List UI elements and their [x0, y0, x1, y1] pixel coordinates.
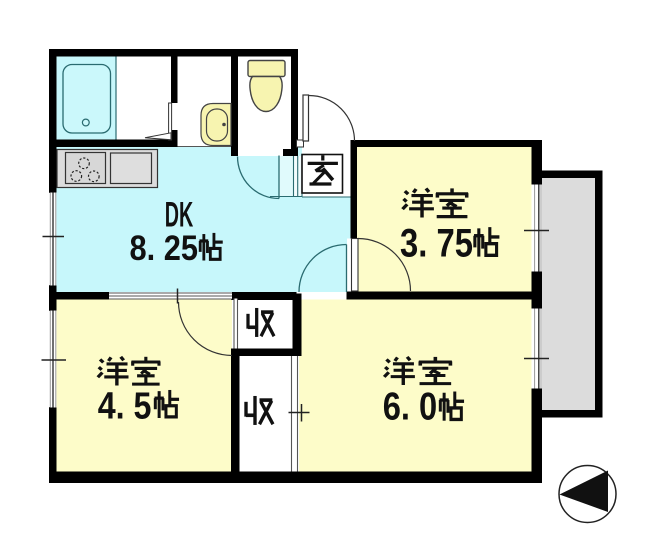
svg-text:8. 25: 8. 25 — [130, 229, 199, 268]
svg-text:3. 75: 3. 75 — [400, 221, 473, 265]
svg-text:6. 0: 6. 0 — [383, 385, 438, 428]
svg-text:4. 5: 4. 5 — [98, 385, 152, 427]
